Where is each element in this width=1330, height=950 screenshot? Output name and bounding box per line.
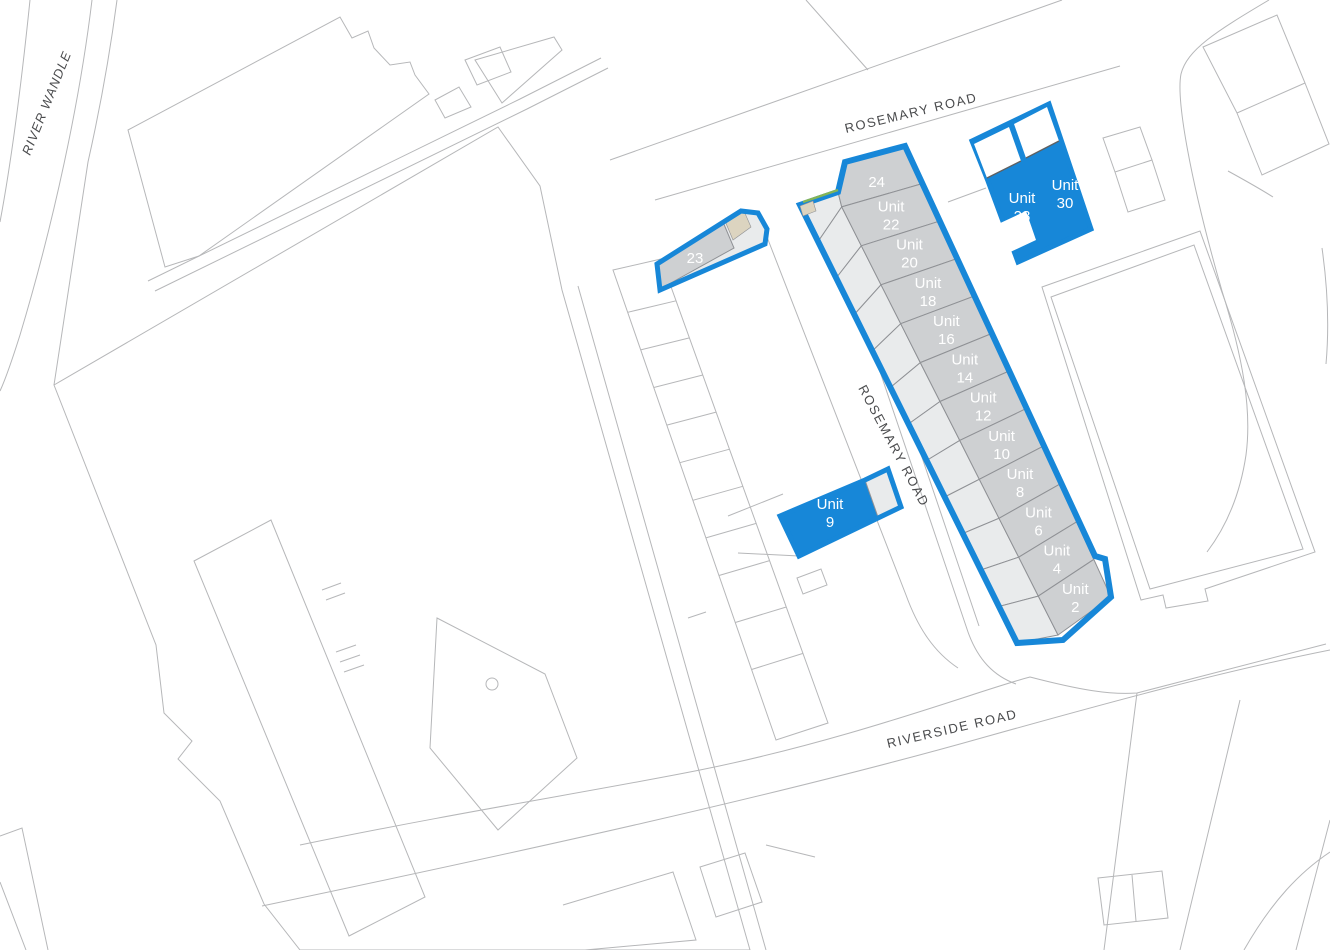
building-arc-notch [486, 678, 498, 690]
inner-building-ticks [322, 583, 364, 672]
bottom-middle-buildings [563, 845, 815, 950]
unit-23-building[interactable] [657, 211, 767, 290]
top-middle-buildings [435, 37, 562, 118]
site-plan: 24Unit22Unit20Unit18Unit16Unit14Unit12Un… [0, 0, 1330, 950]
riverside-north-edge [300, 644, 1326, 845]
bay-strip-building [613, 259, 828, 740]
unit9-tab [797, 569, 827, 594]
top-right-parcels [1203, 15, 1329, 175]
river-bank-left [0, 0, 30, 222]
top-right-road-loop [1180, 0, 1269, 552]
top-right-inner-curves [1228, 171, 1328, 364]
unit-23-label[interactable]: 23 [687, 250, 704, 267]
unit-24-label[interactable]: 24 [868, 174, 885, 191]
background-linework [0, 0, 1330, 950]
riverside-road-label: RIVERSIDE ROAD [885, 706, 1019, 751]
river-wandle-label: RIVER WANDLE [19, 49, 74, 157]
alley-lines [148, 58, 608, 291]
bottom-left-parcels [0, 828, 48, 950]
parcel-b [54, 127, 750, 950]
inner-tall-building [194, 520, 425, 936]
parcel-a [128, 17, 429, 267]
central-bottom-building [430, 618, 577, 830]
river-bank-right [0, 0, 92, 391]
bottom-right-parcels [1104, 693, 1330, 950]
